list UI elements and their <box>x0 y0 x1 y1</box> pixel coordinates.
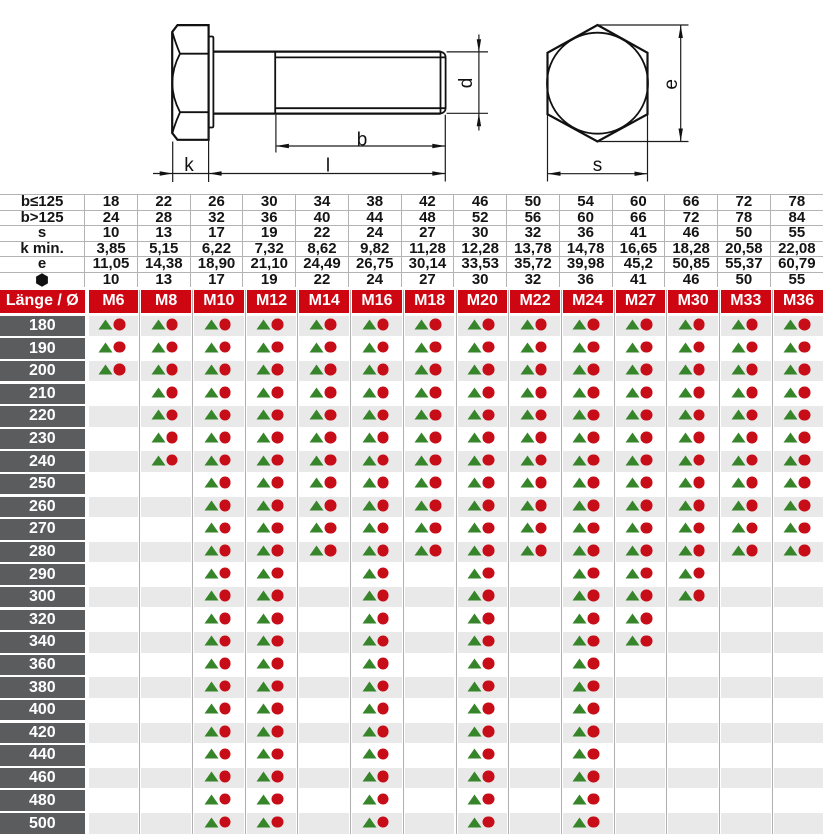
svg-text:e: e <box>661 79 682 90</box>
svg-text:k: k <box>184 155 194 176</box>
svg-text:d: d <box>456 78 477 89</box>
svg-text:b: b <box>357 130 368 151</box>
svg-text:s: s <box>593 155 603 176</box>
svg-text:l: l <box>326 156 330 177</box>
